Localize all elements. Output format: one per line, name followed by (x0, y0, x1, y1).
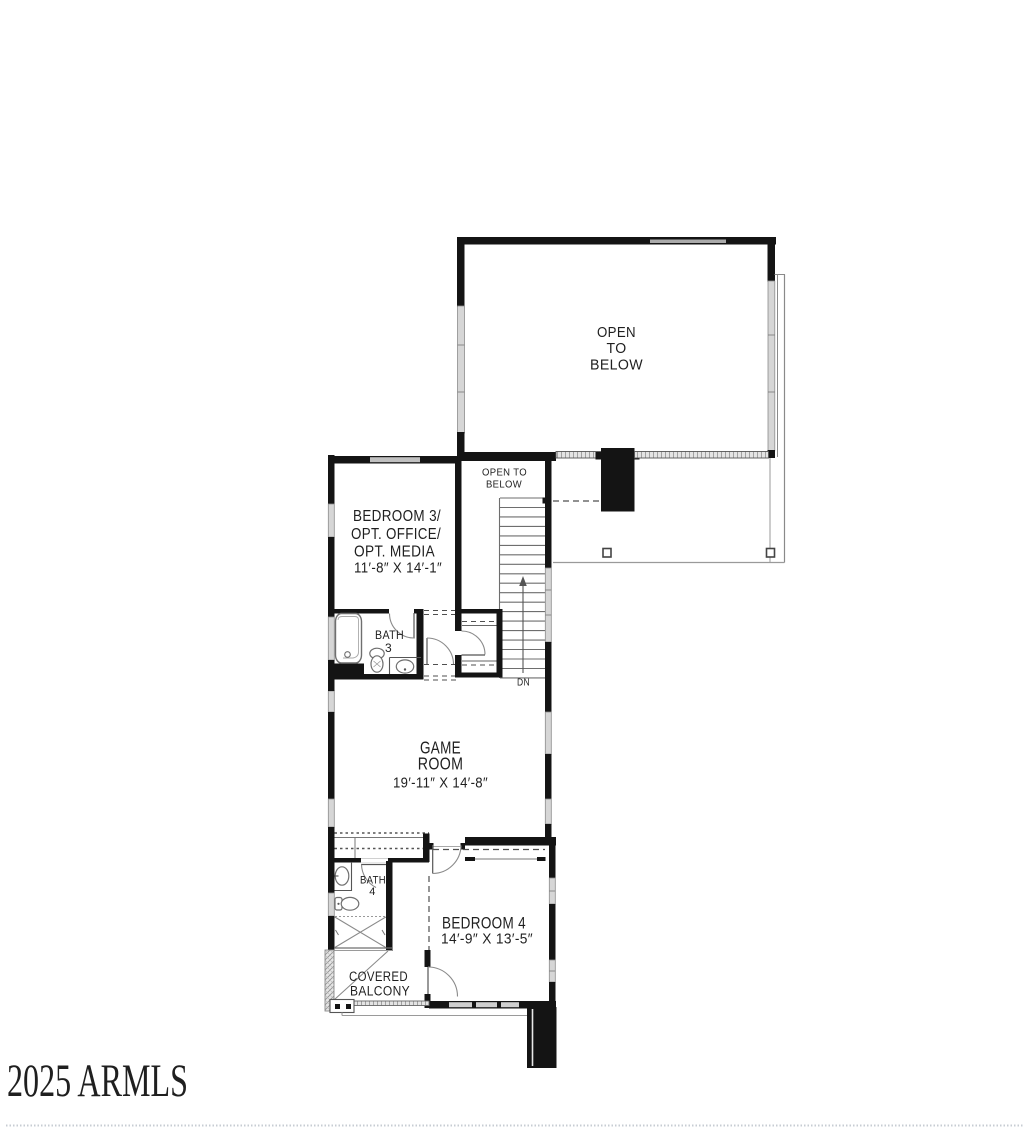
svg-text:OPEN TO: OPEN TO (482, 467, 527, 479)
svg-text:OPT. OFFICE/: OPT. OFFICE/ (351, 526, 441, 543)
svg-text:ROOM: ROOM (418, 754, 464, 774)
svg-text:2025 ARMLS: 2025 ARMLS (7, 1055, 188, 1107)
svg-text:BEDROOM 3/: BEDROOM 3/ (353, 508, 441, 525)
svg-text:TO: TO (607, 340, 627, 357)
svg-text:OPEN: OPEN (597, 324, 636, 341)
svg-text:BELOW: BELOW (486, 479, 522, 491)
svg-text:BATH: BATH (360, 875, 386, 887)
svg-text:BELOW: BELOW (590, 357, 643, 374)
svg-text:BATH: BATH (375, 628, 404, 642)
svg-text:14′-9″ X 13′-5″: 14′-9″ X 13′-5″ (441, 931, 533, 948)
svg-text:OPT. MEDIA: OPT. MEDIA (354, 544, 435, 561)
svg-text:11′-8″ X 14′-1″: 11′-8″ X 14′-1″ (354, 560, 442, 577)
svg-text:19′-11″ X 14′-8″: 19′-11″ X 14′-8″ (393, 775, 488, 792)
svg-text:3: 3 (385, 641, 392, 655)
svg-text:BALCONY: BALCONY (350, 984, 410, 999)
svg-text:DN: DN (517, 678, 530, 689)
svg-text:COVERED: COVERED (349, 969, 408, 984)
svg-text:4: 4 (369, 886, 376, 898)
